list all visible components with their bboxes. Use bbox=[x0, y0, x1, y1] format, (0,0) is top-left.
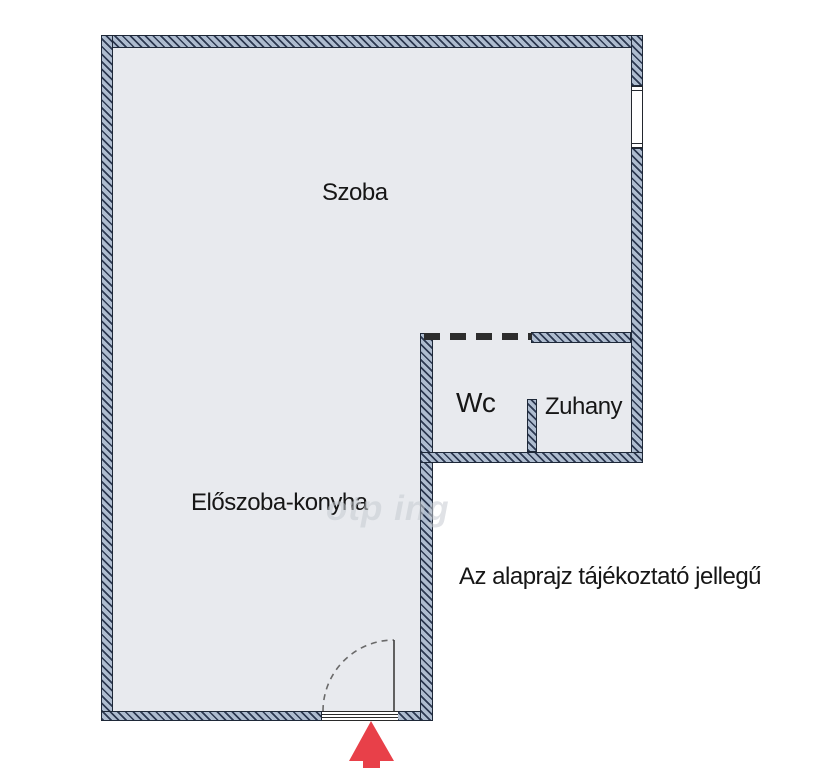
entrance-arrow-icon bbox=[349, 721, 394, 768]
floor-plan: Szoba Wc Zuhany Előszoba-konyha Az alapr… bbox=[0, 0, 838, 768]
watermark-text: otp ing bbox=[326, 489, 450, 529]
door-and-arrow-overlay bbox=[0, 0, 838, 768]
door-swing-arc-icon bbox=[323, 640, 394, 711]
